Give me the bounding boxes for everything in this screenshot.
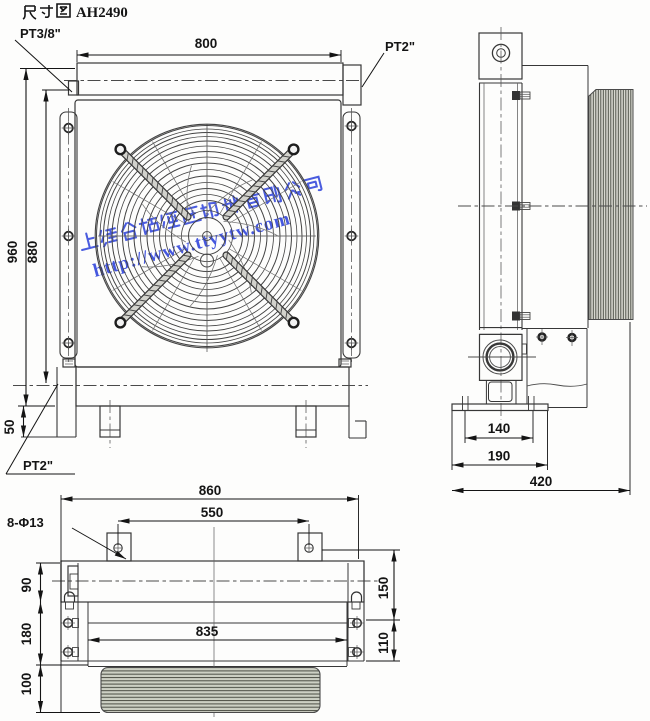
svg-text:860: 860 bbox=[199, 483, 222, 498]
svg-text:880: 880 bbox=[25, 241, 40, 264]
svg-text:190: 190 bbox=[488, 449, 511, 464]
svg-text:550: 550 bbox=[201, 505, 224, 520]
svg-text:420: 420 bbox=[530, 474, 553, 489]
svg-text:PT3/8": PT3/8" bbox=[20, 26, 61, 41]
svg-text:150: 150 bbox=[376, 577, 391, 600]
svg-text:PT2": PT2" bbox=[23, 458, 53, 473]
svg-text:100: 100 bbox=[19, 673, 34, 696]
svg-text:90: 90 bbox=[19, 577, 34, 592]
svg-text:140: 140 bbox=[488, 421, 511, 436]
svg-text:110: 110 bbox=[376, 632, 391, 654]
svg-text:835: 835 bbox=[196, 624, 219, 639]
svg-text:8-Φ13: 8-Φ13 bbox=[7, 515, 44, 530]
svg-text:960: 960 bbox=[5, 241, 20, 264]
svg-text:800: 800 bbox=[195, 36, 218, 51]
svg-text:50: 50 bbox=[2, 419, 17, 434]
svg-text:PT2": PT2" bbox=[385, 39, 415, 54]
svg-text:AH2490: AH2490 bbox=[76, 5, 128, 21]
svg-text:180: 180 bbox=[19, 623, 34, 646]
